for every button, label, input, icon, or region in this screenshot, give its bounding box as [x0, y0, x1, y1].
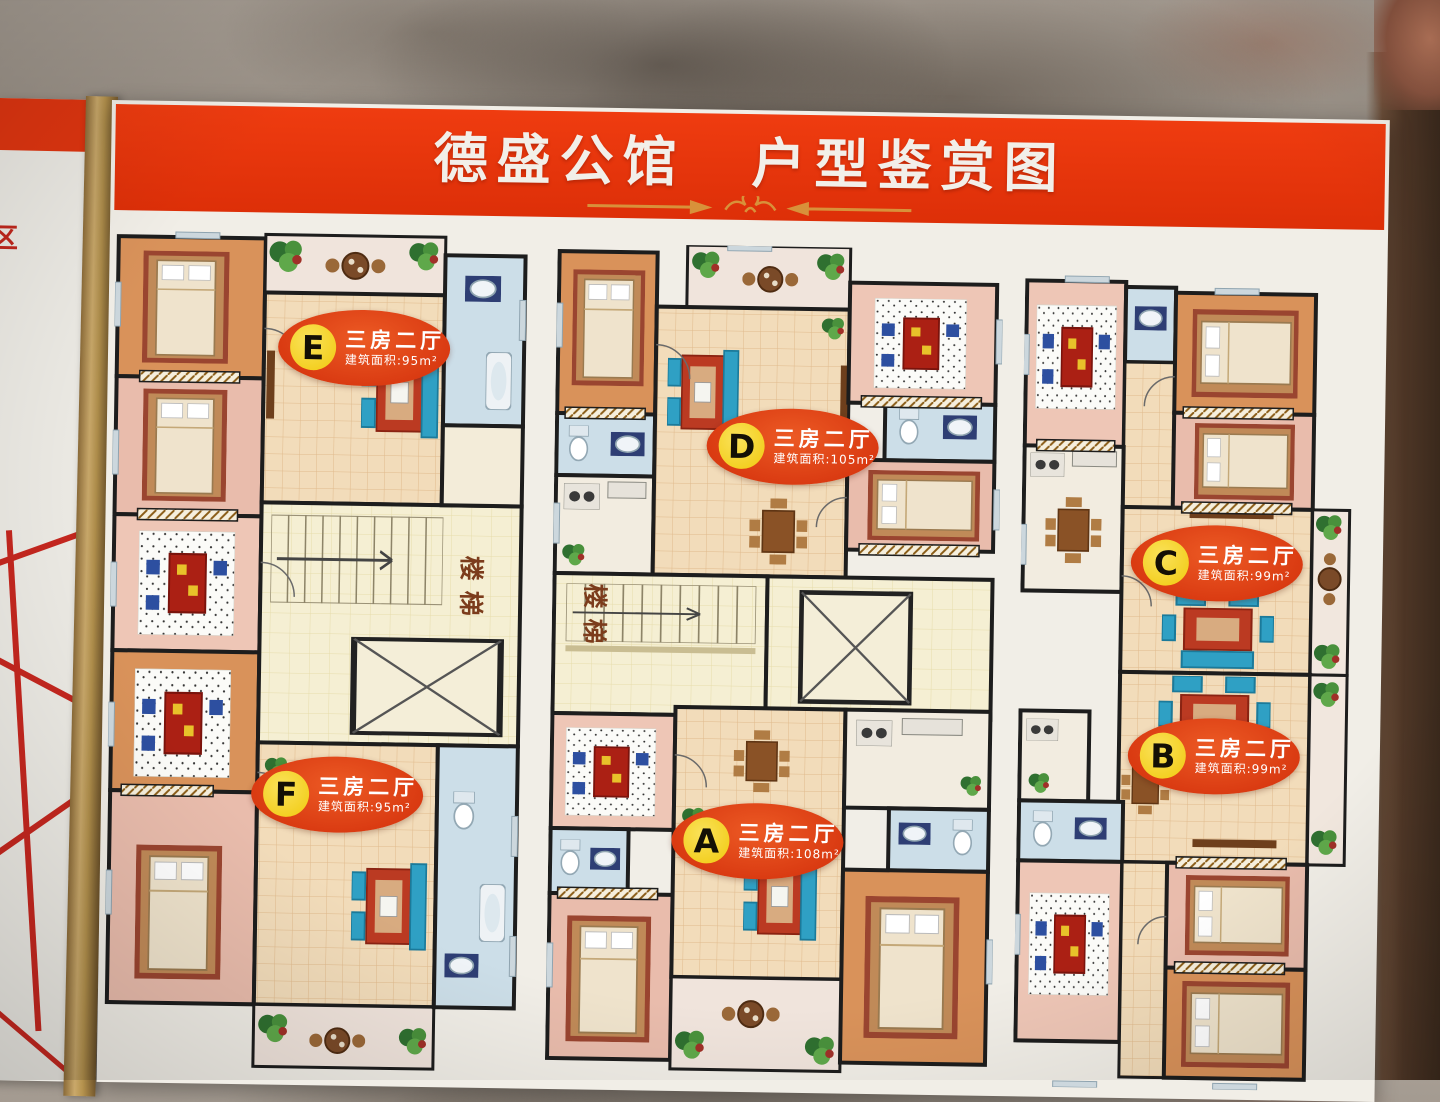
bed [863, 896, 959, 1039]
window [1020, 524, 1027, 564]
window [509, 936, 516, 976]
unit-area: 建筑面积:95m² [318, 800, 418, 815]
sink [444, 953, 478, 978]
background-blur [1374, 0, 1440, 110]
wardrobe [859, 544, 979, 557]
table-set [1028, 893, 1110, 996]
bed [1181, 981, 1290, 1069]
hallway [1119, 862, 1167, 1078]
sink [590, 848, 620, 870]
unit-info: 三房二厅 建筑面积:95m² [345, 328, 446, 370]
adjacent-board-banner [0, 98, 96, 152]
hallway [442, 425, 523, 506]
unit-letter-disc: B [1139, 732, 1186, 779]
unit-type: 三房二厅 [738, 821, 840, 847]
elevator-shaft [353, 639, 501, 735]
elevator-shaft [800, 592, 911, 703]
title-gap [686, 157, 752, 158]
window [986, 940, 993, 984]
unit-letter: C [1153, 543, 1178, 582]
bed [867, 470, 980, 542]
floorplan-cluster-right [1013, 274, 1358, 1091]
bed [1185, 875, 1290, 957]
wardrobe [1182, 502, 1292, 515]
unit-area: 建筑面积:95m² [345, 354, 445, 369]
title-left: 德盛公馆 [433, 114, 686, 197]
tv-cabinet [266, 350, 275, 418]
title-right: 户型鉴赏图 [751, 119, 1067, 203]
toilet [953, 819, 973, 854]
stove [564, 483, 600, 510]
unit-info: 三房二厅 建筑面积:95m² [318, 774, 419, 816]
table-set [565, 727, 656, 816]
unit-area: 建筑面积:99m² [1198, 569, 1298, 584]
wardrobe [137, 508, 237, 521]
bed [1194, 423, 1295, 501]
toilet [899, 408, 919, 443]
unit-info: 三房二厅 建筑面积:99m² [1198, 543, 1299, 585]
unit-letter: E [302, 328, 325, 367]
sink [465, 276, 501, 303]
window [553, 503, 560, 543]
unit-letter-disc: E [290, 324, 337, 371]
toilet [1033, 811, 1053, 846]
unit-letter: F [275, 774, 298, 813]
sink [1075, 817, 1107, 839]
toilet [569, 425, 589, 460]
window [105, 870, 112, 914]
bathtub [485, 352, 512, 410]
window [519, 300, 526, 340]
unit-type: 三房二厅 [1198, 543, 1298, 569]
bed [142, 389, 228, 502]
unit-letter: D [728, 426, 756, 465]
display-board: 德盛公馆 户型鉴赏图 楼梯 [97, 100, 1390, 1102]
window [996, 320, 1003, 364]
unit-info: 三房二厅 建筑面积:105m² [773, 426, 875, 468]
wardrobe [121, 784, 213, 796]
window [108, 702, 115, 746]
unit-type: 三房二厅 [345, 328, 445, 354]
unit-area: 建筑面积:105m² [773, 453, 875, 468]
window [728, 245, 772, 252]
sink [898, 822, 930, 844]
window [1065, 276, 1109, 283]
table-set [874, 298, 967, 389]
unit-letter-disc: C [1143, 539, 1190, 586]
wardrobe [1037, 440, 1115, 452]
wardrobe [861, 396, 981, 409]
unit-area: 建筑面积:99m² [1195, 762, 1295, 777]
title-flourish-icon [579, 193, 919, 220]
toilet [453, 791, 474, 828]
wardrobe [558, 887, 658, 900]
wardrobe [1183, 407, 1293, 420]
window [176, 232, 220, 239]
bed [572, 269, 646, 386]
window [1215, 288, 1259, 295]
window [112, 430, 119, 474]
stove [1030, 452, 1064, 477]
stove [1026, 718, 1058, 740]
counter [902, 718, 962, 735]
stove [856, 720, 892, 747]
window [110, 562, 117, 606]
unit-letter-disc: A [683, 817, 730, 864]
window [546, 943, 553, 987]
window [511, 816, 518, 856]
unit-letter-disc: F [263, 770, 310, 817]
unit-letter: A [693, 821, 719, 860]
table-set [138, 530, 236, 635]
window [1023, 334, 1030, 374]
unit-letter: B [1150, 736, 1176, 775]
sink [943, 415, 977, 440]
stair-label: 楼梯 [579, 583, 609, 653]
stair-label: 楼梯 [456, 555, 486, 625]
hallway [1123, 362, 1175, 508]
counter [1072, 451, 1116, 467]
window [556, 303, 563, 347]
bed [565, 915, 651, 1042]
window [1053, 1081, 1097, 1088]
unit-type: 三房二厅 [318, 774, 418, 800]
tv-cabinet [1192, 839, 1276, 848]
bed [134, 844, 222, 979]
table-set [1035, 305, 1117, 410]
bathtub [479, 884, 506, 942]
wardrobe [1176, 857, 1286, 870]
unit-info: 三房二厅 建筑面积:99m² [1195, 736, 1296, 778]
unit-info: 三房二厅 建筑面积:108m² [738, 821, 840, 863]
floorplan-cluster-middle: 楼梯 [545, 243, 1004, 1086]
wardrobe [140, 370, 240, 383]
unit-area: 建筑面积:108m² [738, 847, 840, 862]
window [1213, 1083, 1257, 1090]
window [993, 490, 1000, 530]
unit-type: 三房二厅 [1195, 736, 1295, 762]
patio-table [1318, 568, 1340, 590]
counter [608, 482, 646, 499]
window [114, 282, 121, 326]
sink [610, 432, 644, 457]
banner: 德盛公馆 户型鉴赏图 [114, 104, 1386, 230]
sink [1135, 306, 1167, 330]
bed [1191, 309, 1298, 399]
unit-letter-disc: D [718, 423, 765, 470]
wardrobe [565, 407, 645, 419]
table-set [133, 668, 231, 777]
bed [142, 251, 230, 364]
wardrobe [1174, 962, 1284, 975]
page-title: 德盛公馆 户型鉴赏图 [433, 114, 1067, 203]
toilet [560, 839, 580, 874]
window [1014, 914, 1021, 954]
unit-type: 三房二厅 [774, 426, 876, 452]
